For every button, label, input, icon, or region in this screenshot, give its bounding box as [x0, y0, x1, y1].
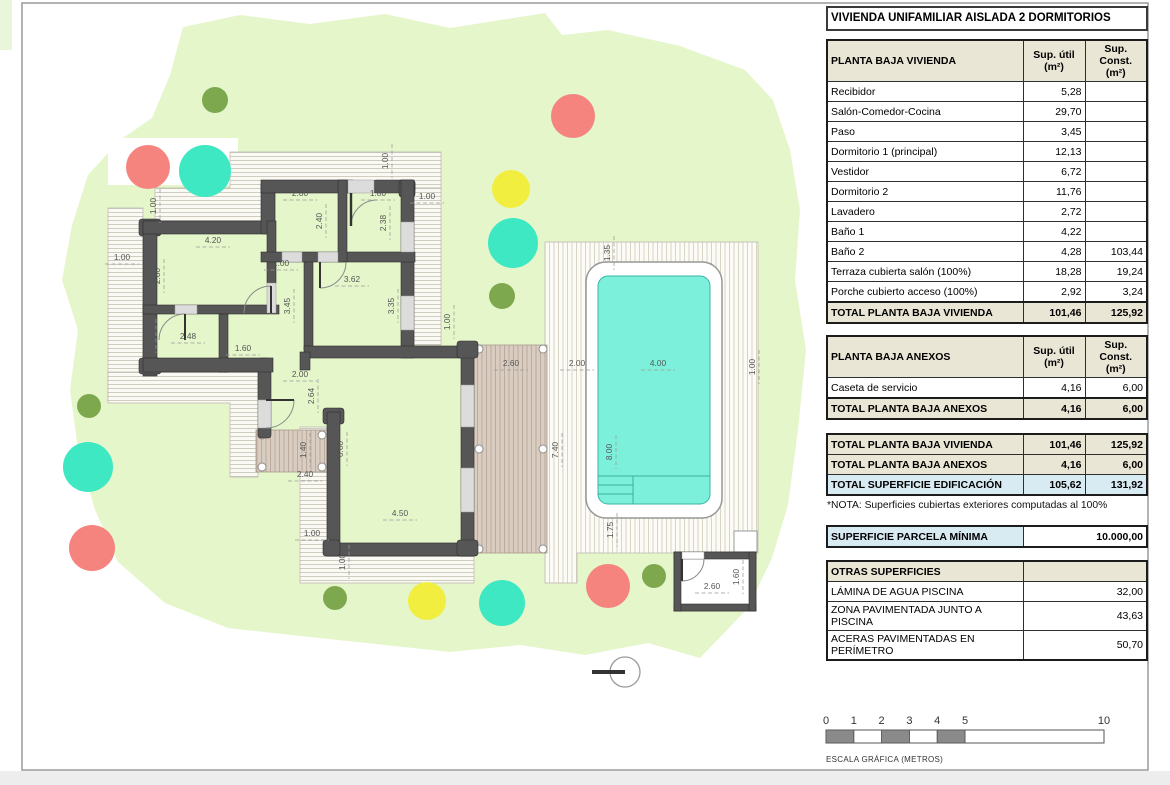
table-row: LÁMINA DE AGUA PISCINA32,00 — [827, 582, 1147, 602]
summary-row: TOTAL SUPERFICIE EDIFICACIÓN105,62131,92 — [827, 475, 1147, 496]
dimension-label: 1.40 — [298, 442, 308, 459]
table-header-row: PLANTA BAJA ANEXOS Sup. útil(m²) Sup. Co… — [827, 336, 1147, 378]
table-row: Lavadero2,72 — [827, 202, 1147, 222]
drawing-sheet: 4.202.801.801.002.402.381.002.801.003.62… — [0, 0, 1170, 785]
table-row: ZONA PAVIMENTADA JUNTO A PISCINA43,63 — [827, 602, 1147, 631]
page-left-sliver — [0, 0, 12, 50]
col-header-sup-util: Sup. útil(m²) — [1023, 40, 1085, 82]
swimming-pool — [586, 262, 722, 518]
benchmark-symbol — [592, 657, 640, 687]
dimension-label: 1.60 — [235, 343, 252, 353]
header-planta-baja-anexos: PLANTA BAJA ANEXOS — [827, 336, 1023, 378]
table-row: Dormitorio 211,76 — [827, 182, 1147, 202]
scale-tick-label: 5 — [962, 715, 968, 727]
dimension-label: 3.45 — [282, 298, 292, 315]
table-row: Porche cubierto acceso (100%)2,923,24 — [827, 282, 1147, 303]
dimension-label: 2.38 — [378, 215, 388, 232]
table-row: Caseta de servicio4,166,00 — [827, 378, 1147, 399]
dimension-label: 1.00 — [337, 554, 347, 571]
dimension-label: 3.62 — [344, 274, 361, 284]
col-header-sup-util: Sup. útil(m²) — [1023, 336, 1085, 378]
dimension-label: 1.75 — [605, 522, 615, 539]
shed-door-opening — [682, 552, 704, 559]
dimension-label: 2.80 — [292, 188, 309, 198]
table-row: Vestidor6,72 — [827, 162, 1147, 182]
summary-row: TOTAL PLANTA BAJA VIVIENDA101,46125,92 — [827, 434, 1147, 455]
scale-tick-label: 0 — [823, 715, 829, 727]
tree — [408, 582, 446, 620]
table-otras-superficies: OTRAS SUPERFICIES LÁMINA DE AGUA PISCINA… — [826, 560, 1148, 661]
tree — [489, 283, 515, 309]
dimension-label: 1.00 — [442, 314, 452, 331]
dimension-label: 6.60 — [335, 441, 345, 458]
dimension-label: 1.00 — [380, 153, 390, 170]
table-row: Baño 24,28103,44 — [827, 242, 1147, 262]
col-header-sup-const: Sup. Const.(m²) — [1085, 336, 1147, 378]
scale-tick-label: 1 — [851, 715, 857, 727]
tree — [479, 580, 525, 626]
dimension-label: 7.40 — [550, 442, 560, 459]
dimension-label: 3.35 — [386, 298, 396, 315]
tree — [488, 218, 538, 268]
dimension-label: 1.00 — [273, 258, 290, 268]
table-header-row: PLANTA BAJA VIVIENDA Sup. útil(m²) Sup. … — [827, 40, 1147, 82]
dimension-label: 2.60 — [704, 581, 721, 591]
page-bottom-strip — [0, 771, 1170, 785]
tree — [551, 94, 595, 138]
tree — [202, 87, 228, 113]
dimension-label: 1.00 — [304, 528, 321, 538]
dimension-label: 8.00 — [604, 444, 614, 461]
note-text: *NOTA: Superficies cubiertas exteriores … — [827, 500, 1148, 511]
dimension-label: 1.60 — [731, 569, 741, 586]
dimension-label: 2.00 — [292, 369, 309, 379]
graphic-scale-caption: ESCALA GRÁFICA (METROS) — [826, 755, 943, 764]
dimension-label: 2.60 — [503, 358, 520, 368]
scale-tick-label: 10 — [1098, 715, 1110, 727]
tree — [179, 145, 231, 197]
table-row: Terraza cubierta salón (100%)18,2819,24 — [827, 262, 1147, 282]
dimension-label: 1.00 — [114, 252, 131, 262]
table-row: ACERAS PAVIMENTADAS EN PERÍMETRO50,70 — [827, 631, 1147, 661]
areas-panel: VIVIENDA UNIFAMILIAR AISLADA 2 DORMITORI… — [826, 6, 1148, 661]
tree — [323, 586, 347, 610]
header-planta-baja-vivienda: PLANTA BAJA VIVIENDA — [827, 40, 1023, 82]
dimension-label: 2.80 — [152, 268, 162, 285]
summary-row: TOTAL PLANTA BAJA ANEXOS4,166,00 — [827, 455, 1147, 475]
table-row: SUPERFICIE PARCELA MÍNIMA 10.000,00 — [827, 526, 1147, 547]
table-parcela-minima: SUPERFICIE PARCELA MÍNIMA 10.000,00 — [826, 525, 1148, 548]
dimension-label: 1.35 — [602, 245, 612, 262]
dimension-label: 2.40 — [314, 213, 324, 230]
table-resumen-totales: TOTAL PLANTA BAJA VIVIENDA101,46125,92TO… — [826, 433, 1148, 496]
col-header-sup-const: Sup. Const.(m²) — [1085, 40, 1147, 82]
scale-tick-label: 3 — [906, 715, 912, 727]
table-row: Salón-Comedor-Cocina29,70 — [827, 102, 1147, 122]
table-planta-baja-anexos: PLANTA BAJA ANEXOS Sup. útil(m²) Sup. Co… — [826, 335, 1148, 420]
parcela-value: 10.000,00 — [1023, 526, 1147, 547]
dimension-label: 1.70 — [144, 328, 154, 345]
table-header-row: OTRAS SUPERFICIES — [827, 561, 1147, 582]
graphic-scale: 01234510 — [823, 715, 1110, 743]
tree — [69, 525, 115, 571]
tree — [642, 564, 666, 588]
covered-terrace — [474, 345, 547, 553]
total-row: TOTAL PLANTA BAJA ANEXOS4,166,00 — [827, 398, 1147, 419]
dimension-label: 2.40 — [297, 469, 314, 479]
total-row: TOTAL PLANTA BAJA VIVIENDA101,46125,92 — [827, 302, 1147, 323]
parcela-label: SUPERFICIE PARCELA MÍNIMA — [827, 526, 1023, 547]
table-row: Paso3,45 — [827, 122, 1147, 142]
dimension-label: 2.00 — [569, 358, 586, 368]
scale-tick-label: 2 — [879, 715, 885, 727]
dimension-label: 1.00 — [419, 191, 436, 201]
dimension-label: 4.20 — [205, 235, 222, 245]
dimension-label: 2.48 — [180, 331, 197, 341]
dimension-label: 1.80 — [370, 188, 387, 198]
dimension-label: 1.00 — [747, 359, 757, 376]
tree — [63, 442, 113, 492]
dimension-label: 4.00 — [650, 358, 667, 368]
table-row: Dormitorio 1 (principal)12,13 — [827, 142, 1147, 162]
tree — [126, 145, 170, 189]
tree — [586, 564, 630, 608]
table-planta-baja-vivienda: PLANTA BAJA VIVIENDA Sup. útil(m²) Sup. … — [826, 39, 1148, 324]
dimension-label: 4.50 — [392, 508, 409, 518]
scale-tick-label: 4 — [934, 715, 940, 727]
tree — [492, 170, 530, 208]
dimension-label: 2.64 — [306, 388, 316, 405]
table-row: Recibidor5,28 — [827, 82, 1147, 102]
header-otras-superficies: OTRAS SUPERFICIES — [827, 561, 1023, 582]
sheet-title: VIVIENDA UNIFAMILIAR AISLADA 2 DORMITORI… — [826, 6, 1148, 31]
tree — [77, 394, 101, 418]
table-row: Baño 14,22 — [827, 222, 1147, 242]
dimension-label: 1.00 — [148, 198, 158, 215]
